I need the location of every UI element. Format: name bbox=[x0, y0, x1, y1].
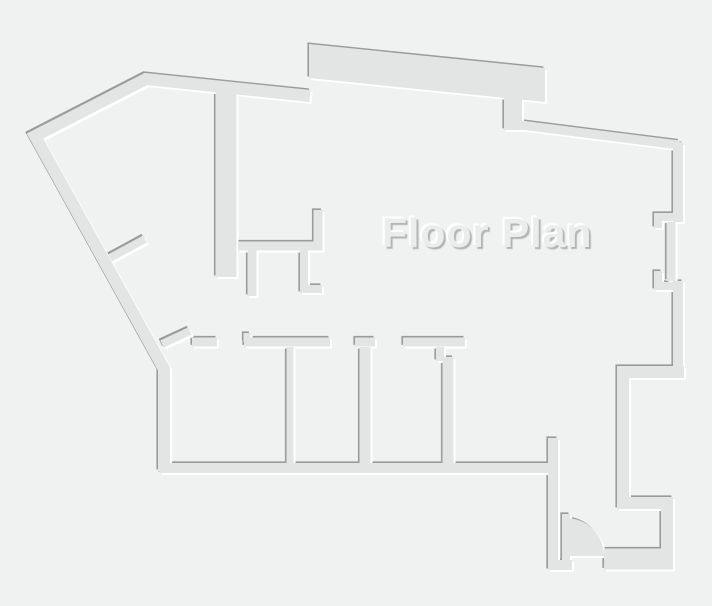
emboss-layer-fill bbox=[35, 44, 684, 570]
floor-plan: Floor Plan bbox=[0, 0, 712, 606]
door-swing-arc bbox=[566, 518, 604, 556]
floor-plan-title: Floor Plan bbox=[382, 210, 592, 257]
floor-plan-canvas bbox=[0, 0, 712, 606]
closet-stub-right bbox=[304, 250, 322, 289]
closet-wall bbox=[236, 208, 316, 244]
exterior-left-wall bbox=[35, 79, 310, 471]
right-jog-wall bbox=[625, 374, 686, 563]
top-terrace-band bbox=[309, 44, 545, 102]
exterior-left-wall bbox=[37, 81, 312, 473]
walls-layer bbox=[33, 42, 686, 572]
top-right-wall bbox=[513, 124, 679, 145]
